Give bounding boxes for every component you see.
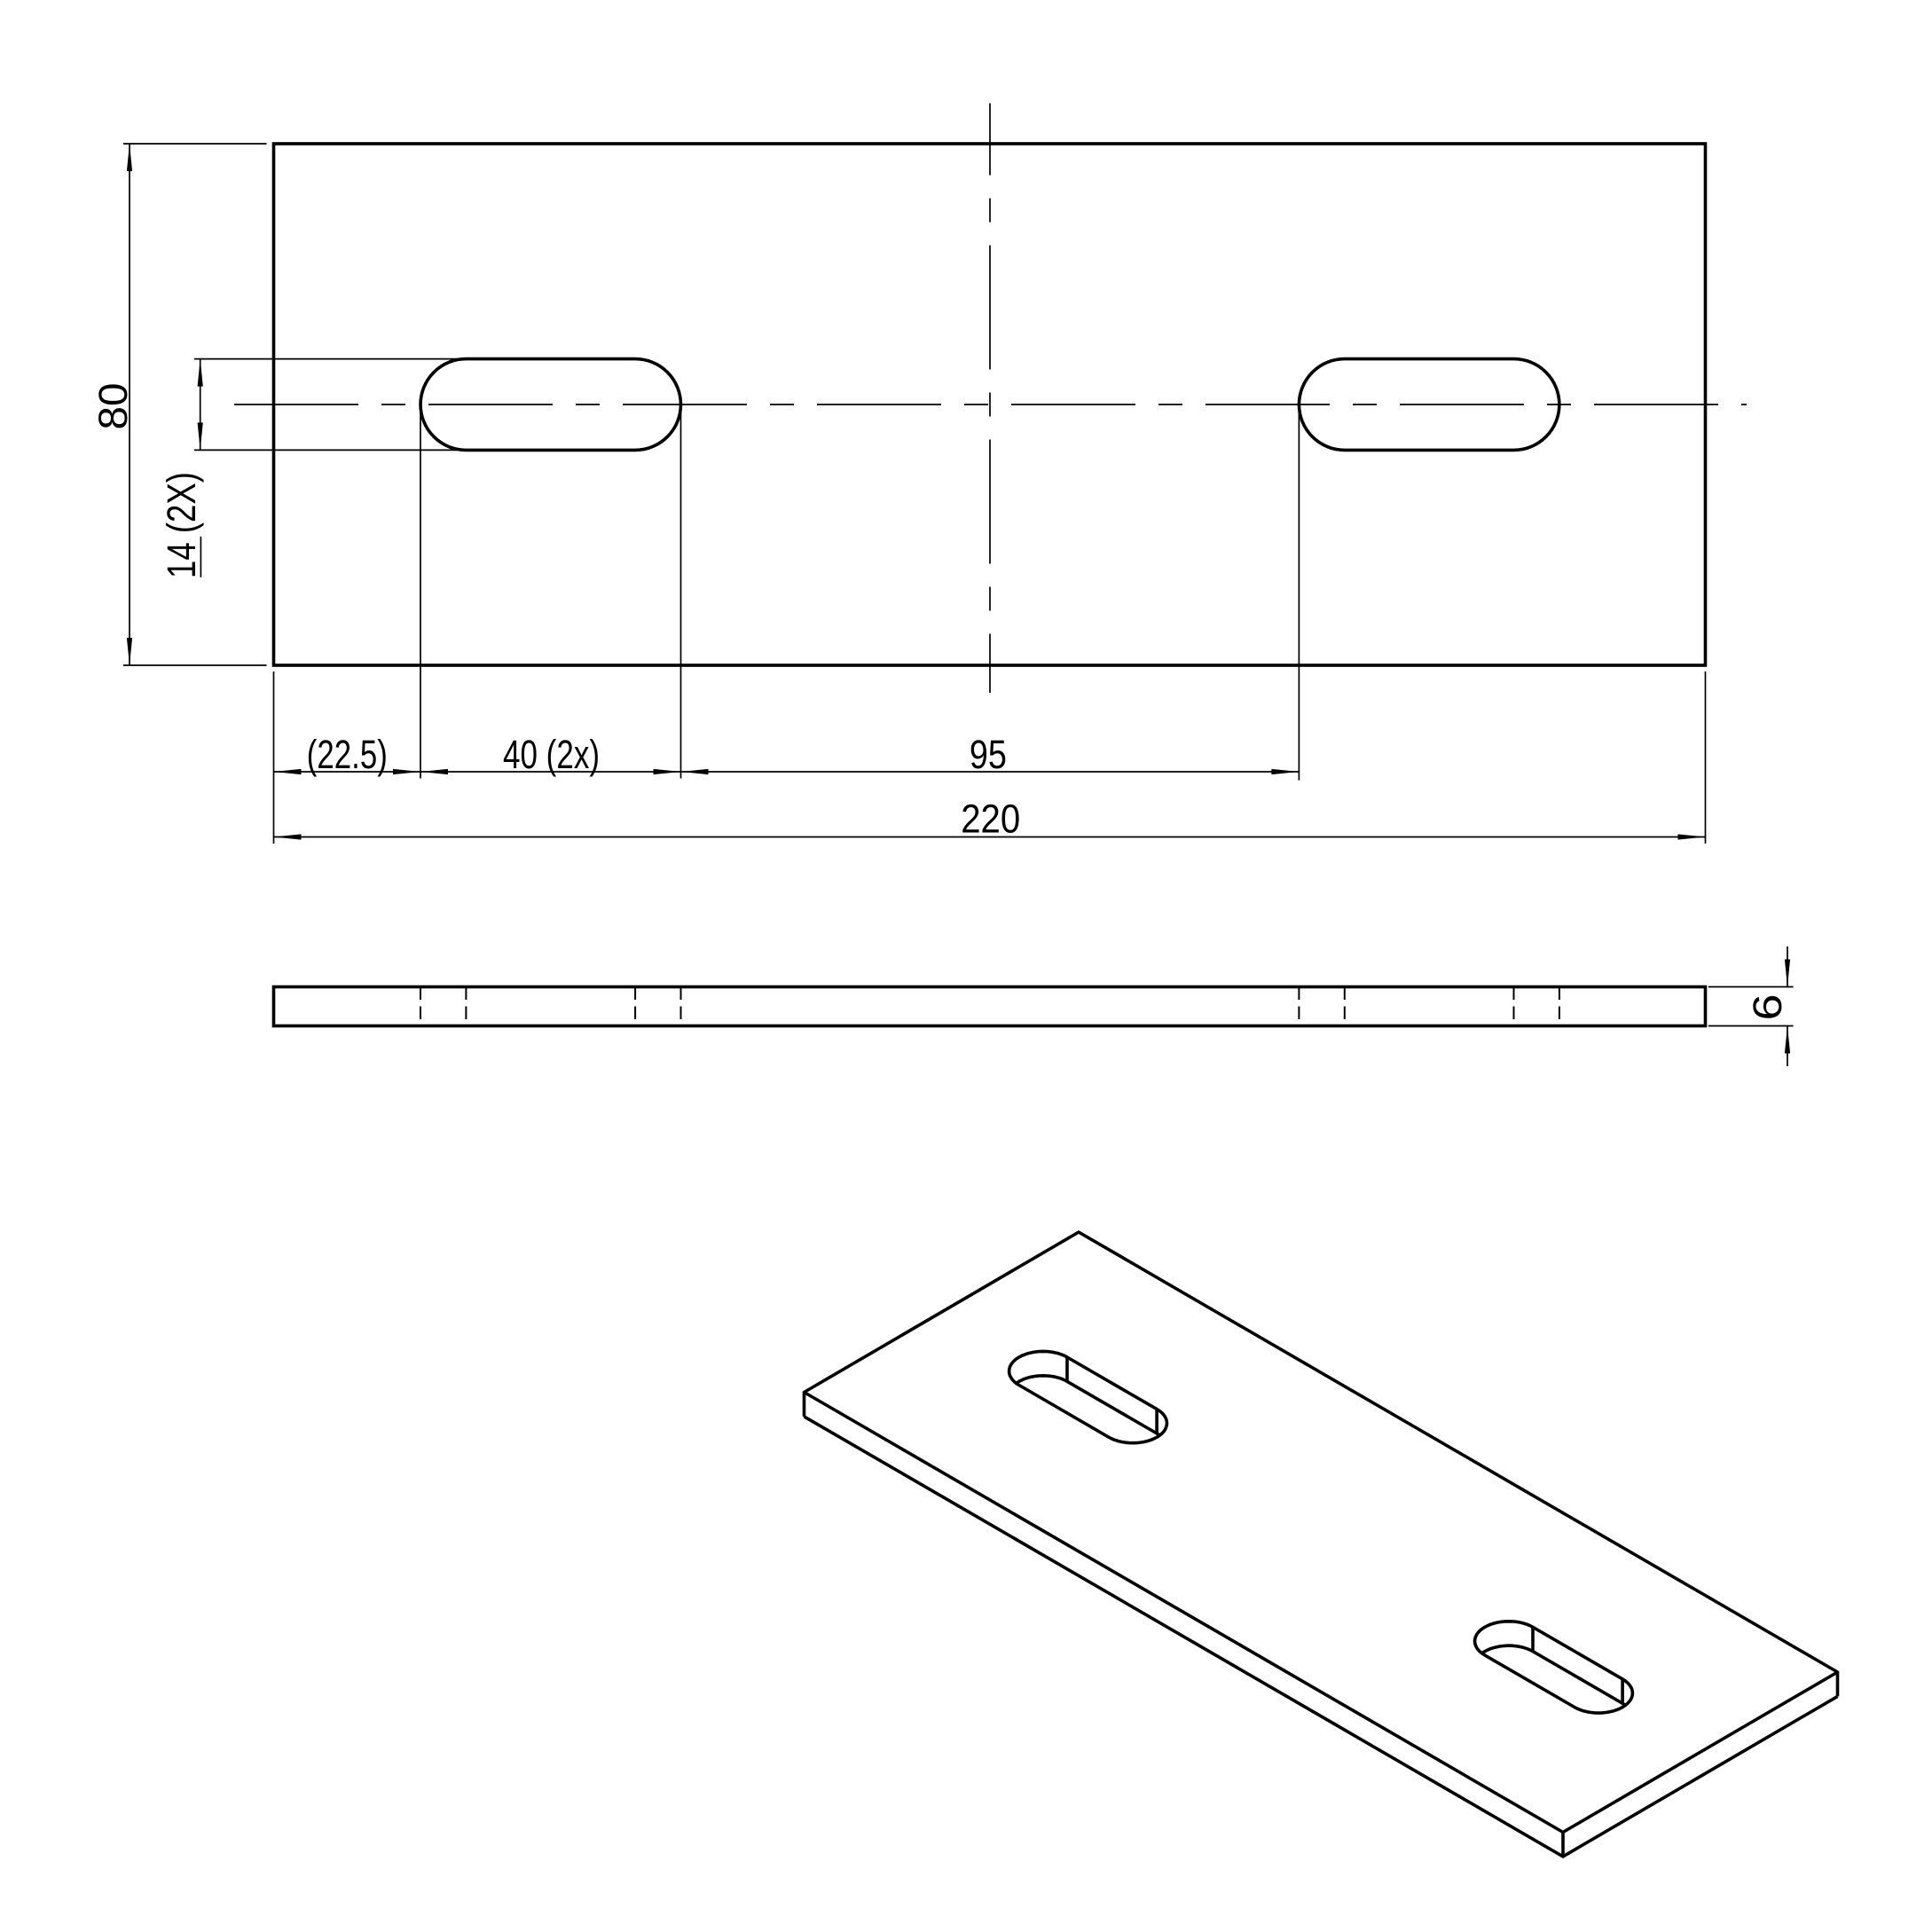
svg-text:95: 95	[970, 732, 1007, 777]
svg-text:220: 220	[961, 797, 1020, 842]
svg-text:80: 80	[90, 383, 136, 430]
svg-text:6: 6	[1745, 994, 1790, 1021]
svg-text:40 (2x): 40 (2x)	[503, 732, 600, 777]
svg-text:(22.5): (22.5)	[307, 732, 388, 777]
svg-text:14 (2X): 14 (2X)	[159, 472, 204, 578]
